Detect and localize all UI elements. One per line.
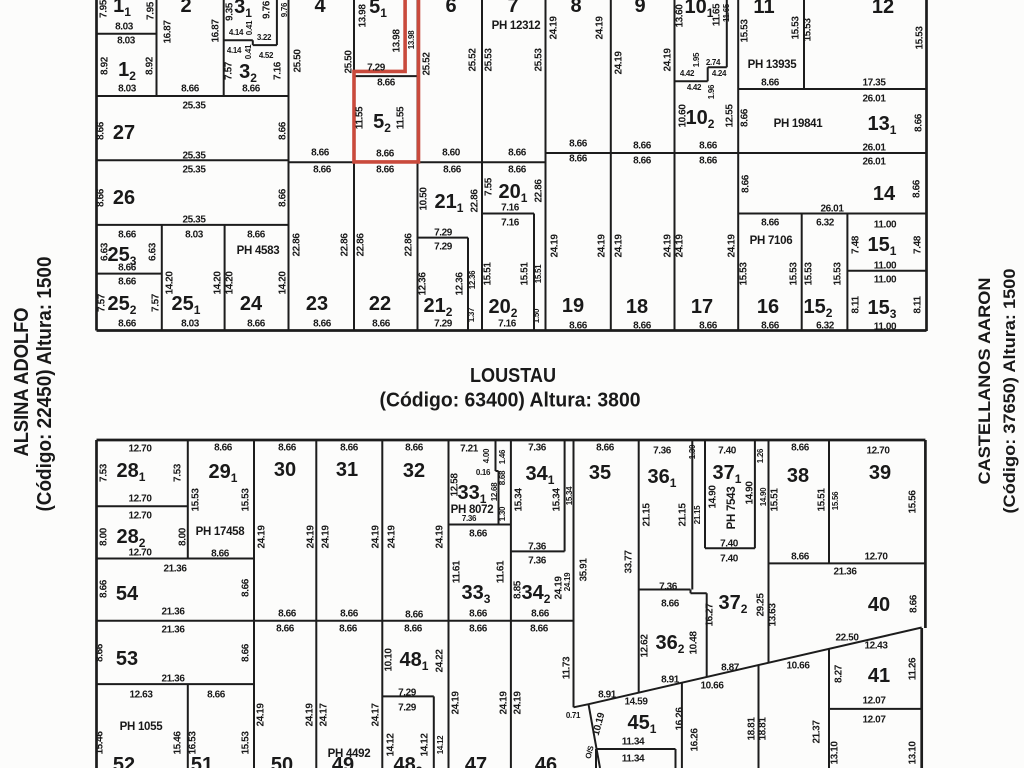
svg-text:7.40: 7.40 [718,446,737,457]
svg-text:15.53: 15.53 [740,19,751,43]
svg-text:25.53: 25.53 [484,48,495,72]
svg-text:7: 7 [507,0,518,17]
svg-text:11.73: 11.73 [562,656,573,679]
svg-text:8.66: 8.66 [596,443,615,454]
svg-text:12.68: 12.68 [490,482,499,501]
svg-text:7.36: 7.36 [528,443,547,454]
svg-text:10.66: 10.66 [786,661,810,672]
svg-text:21.36: 21.36 [833,567,857,578]
svg-text:7.29: 7.29 [398,703,417,714]
svg-text:12.70: 12.70 [128,511,152,522]
svg-text:ALSINA ADOLFO: ALSINA ADOLFO [11,308,33,457]
svg-text:39: 39 [869,462,891,484]
svg-text:12.63: 12.63 [129,690,153,701]
svg-text:1.37: 1.37 [467,307,476,322]
svg-text:7.95: 7.95 [99,0,110,18]
svg-text:11.65: 11.65 [712,3,723,26]
svg-text:0.41: 0.41 [245,20,254,35]
svg-text:8.66: 8.66 [633,156,652,167]
svg-text:11.00: 11.00 [874,275,897,286]
svg-text:17: 17 [691,296,713,318]
svg-text:7.29: 7.29 [367,63,386,74]
svg-text:14.12: 14.12 [386,733,397,757]
svg-text:15.53: 15.53 [241,488,252,512]
svg-text:8.66: 8.66 [469,529,488,540]
svg-text:13.10: 13.10 [830,741,841,765]
svg-text:14.20: 14.20 [278,271,289,295]
svg-text:15.53: 15.53 [241,731,252,755]
svg-text:15.53: 15.53 [915,26,926,50]
svg-text:8.66: 8.66 [761,321,780,332]
svg-text:6.63: 6.63 [148,242,159,261]
svg-text:8.66: 8.66 [118,230,137,241]
svg-text:4.14: 4.14 [229,28,244,37]
svg-text:8.66: 8.66 [443,165,462,176]
svg-text:7.36: 7.36 [528,542,547,553]
svg-text:12: 12 [872,0,894,18]
svg-text:8.66: 8.66 [376,149,395,160]
svg-text:11.00: 11.00 [874,322,897,333]
svg-text:8.66: 8.66 [569,139,588,150]
svg-text:21.37: 21.37 [812,720,823,744]
svg-text:18: 18 [626,296,648,318]
svg-text:8.66: 8.66 [912,179,923,198]
svg-text:29.25: 29.25 [756,593,767,617]
svg-text:47: 47 [465,754,487,768]
svg-text:6: 6 [445,0,456,17]
svg-text:9.35: 9.35 [225,2,236,21]
svg-text:22.86: 22.86 [404,233,415,257]
svg-text:25.35: 25.35 [182,151,206,162]
svg-text:15.51: 15.51 [483,262,494,286]
svg-text:8.87: 8.87 [721,663,740,674]
svg-text:18.81: 18.81 [747,717,758,741]
svg-text:8.66: 8.66 [531,609,550,620]
svg-text:8.11: 8.11 [851,296,862,314]
svg-text:8.91: 8.91 [598,690,617,701]
svg-text:10.50: 10.50 [419,187,430,211]
svg-text:8.66: 8.66 [339,624,358,635]
svg-text:8.66: 8.66 [99,579,110,598]
svg-text:13.63: 13.63 [768,603,779,627]
svg-text:15.51: 15.51 [770,488,781,512]
svg-text:PH 1055: PH 1055 [120,721,164,733]
svg-text:PH 17458: PH 17458 [196,526,246,538]
svg-text:15.51: 15.51 [817,488,828,512]
svg-text:35.91: 35.91 [579,558,590,582]
svg-text:25.35: 25.35 [182,101,206,112]
svg-text:11.34: 11.34 [622,737,645,748]
svg-text:8.66: 8.66 [569,321,588,332]
svg-text:22.86: 22.86 [292,233,303,257]
svg-text:24.17: 24.17 [319,703,330,727]
svg-text:14.20: 14.20 [213,271,224,295]
svg-text:PH 19841: PH 19841 [774,118,824,130]
svg-text:7.55: 7.55 [484,177,495,196]
svg-text:25.52: 25.52 [468,48,479,72]
svg-text:15.56: 15.56 [831,491,840,510]
svg-text:2.74: 2.74 [706,58,721,67]
svg-text:1.30: 1.30 [498,506,507,521]
svg-text:7.53: 7.53 [173,463,184,482]
svg-text:15.46: 15.46 [173,731,184,755]
svg-text:8.66: 8.66 [242,84,261,95]
svg-text:14: 14 [873,183,896,205]
svg-text:22: 22 [369,293,391,315]
svg-text:19: 19 [562,295,584,317]
svg-text:8.66: 8.66 [278,443,297,454]
svg-text:12.70: 12.70 [866,446,890,457]
svg-text:8.66: 8.66 [95,643,106,662]
svg-text:8.03: 8.03 [115,22,134,33]
svg-text:31: 31 [336,459,358,481]
svg-text:11.55: 11.55 [355,106,366,129]
svg-text:7.29: 7.29 [434,242,453,253]
svg-text:22.86: 22.86 [534,179,545,203]
svg-text:12.55: 12.55 [725,104,736,128]
svg-text:11: 11 [753,0,774,18]
svg-text:14.90: 14.90 [708,485,719,509]
svg-text:8.66: 8.66 [340,609,359,620]
svg-text:21.36: 21.36 [161,674,185,685]
svg-text:8.03: 8.03 [185,230,204,241]
svg-text:8.66: 8.66 [278,121,289,140]
svg-text:11.55: 11.55 [396,106,407,129]
svg-text:8.11: 8.11 [913,296,924,314]
svg-text:4: 4 [314,0,326,17]
svg-text:8.66: 8.66 [661,599,680,610]
svg-text:12.70: 12.70 [128,444,152,455]
svg-text:8.66: 8.66 [469,609,488,620]
svg-text:32: 32 [403,460,425,482]
svg-text:24.19: 24.19 [513,691,524,715]
svg-text:8.03: 8.03 [117,36,136,47]
svg-text:8.66: 8.66 [311,148,330,159]
svg-text:11.26: 11.26 [908,657,919,680]
svg-text:12.70: 12.70 [128,548,152,559]
svg-text:(Código: 37650) Altura: 1500: (Código: 37650) Altura: 1500 [1000,269,1019,514]
svg-text:15.51: 15.51 [534,264,543,283]
svg-text:7.48: 7.48 [851,235,862,254]
svg-text:21.15: 21.15 [642,503,653,527]
svg-text:8.66: 8.66 [214,443,233,454]
svg-text:8.66: 8.66 [469,624,488,635]
svg-text:25.53: 25.53 [534,48,545,72]
svg-text:15.53: 15.53 [191,488,202,512]
svg-text:24.19: 24.19 [727,234,738,258]
svg-text:4.00: 4.00 [482,448,491,463]
svg-text:14.20: 14.20 [225,271,236,295]
svg-text:14.59: 14.59 [624,697,648,708]
svg-text:8.03: 8.03 [181,319,200,330]
svg-text:15.53: 15.53 [739,262,750,286]
svg-text:7.36: 7.36 [462,514,477,523]
svg-text:7.16: 7.16 [501,218,520,229]
svg-text:10.66: 10.66 [700,681,724,692]
svg-text:8.00: 8.00 [99,527,110,546]
svg-text:15.34: 15.34 [514,488,525,512]
svg-text:4.52: 4.52 [259,51,274,60]
svg-text:(Código: 22450) Altura: 1500: (Código: 22450) Altura: 1500 [34,257,56,512]
svg-text:16.26: 16.26 [675,707,686,731]
svg-text:12.36: 12.36 [455,272,466,296]
svg-text:8.66: 8.66 [508,165,527,176]
svg-text:14.20: 14.20 [165,271,176,295]
svg-text:24.19: 24.19 [371,525,382,549]
svg-text:15.53: 15.53 [791,16,802,40]
svg-text:24.19: 24.19 [435,525,446,549]
svg-text:1.46: 1.46 [498,449,507,464]
svg-text:PH 13935: PH 13935 [748,59,798,71]
svg-text:7.40: 7.40 [720,554,739,565]
svg-text:8.66: 8.66 [699,141,718,152]
svg-text:8.66: 8.66 [633,141,652,152]
svg-text:1.26: 1.26 [756,448,765,463]
svg-text:9: 9 [634,0,645,17]
svg-text:7.21: 7.21 [460,444,479,455]
svg-text:13.10: 13.10 [908,741,919,765]
svg-text:8.00: 8.00 [178,527,189,546]
svg-text:(Código: 63400) Altura: 3800: (Código: 63400) Altura: 3800 [380,390,641,412]
svg-text:51: 51 [191,754,213,768]
svg-text:8.66: 8.66 [118,277,137,288]
svg-text:7.36: 7.36 [653,446,672,457]
svg-text:8.66: 8.66 [699,156,718,167]
svg-text:12.36: 12.36 [468,270,477,289]
svg-text:25.50: 25.50 [293,49,304,73]
svg-text:26.01: 26.01 [862,143,886,154]
svg-text:PH 7106: PH 7106 [750,235,793,247]
svg-text:8.03: 8.03 [118,84,137,95]
svg-text:0.41: 0.41 [244,44,253,59]
svg-text:24.19: 24.19 [563,572,572,591]
svg-text:11.00: 11.00 [874,261,897,272]
svg-text:11.00: 11.00 [874,220,897,231]
svg-text:8.66: 8.66 [530,624,549,635]
svg-text:8.66: 8.66 [914,113,925,132]
svg-text:38: 38 [787,465,809,487]
svg-text:24.19: 24.19 [306,525,317,549]
svg-text:7.53: 7.53 [99,463,110,482]
svg-text:24.19: 24.19 [614,51,625,75]
svg-text:8.92: 8.92 [145,56,156,75]
svg-text:49: 49 [332,754,354,768]
svg-text:8.66: 8.66 [372,319,391,330]
svg-text:4.24: 4.24 [712,69,727,78]
svg-text:8.68: 8.68 [498,470,507,485]
svg-text:24: 24 [240,293,263,315]
svg-text:10.48: 10.48 [689,631,700,655]
svg-text:PH 12312: PH 12312 [492,20,541,32]
svg-text:50: 50 [271,754,293,768]
svg-text:15.53: 15.53 [803,18,814,42]
svg-text:0.71: 0.71 [566,711,581,720]
svg-text:12.70: 12.70 [128,494,152,505]
svg-text:8.66: 8.66 [569,154,588,165]
svg-text:13.98: 13.98 [392,29,403,53]
svg-text:16.27: 16.27 [705,603,716,627]
svg-text:16.87: 16.87 [211,19,222,43]
svg-text:11.65: 11.65 [722,3,731,22]
svg-text:8.66: 8.66 [207,690,226,701]
svg-text:46: 46 [535,754,557,768]
svg-text:8.66: 8.66 [633,321,652,332]
svg-text:15.53: 15.53 [789,262,800,286]
svg-text:8.66: 8.66 [247,319,266,330]
svg-text:26: 26 [113,187,135,209]
svg-text:8.66: 8.66 [909,594,920,613]
svg-text:23: 23 [306,293,328,315]
svg-text:52: 52 [113,754,135,768]
svg-text:8.91: 8.91 [661,675,680,686]
svg-text:30: 30 [274,459,296,481]
svg-text:6.32: 6.32 [816,321,835,332]
svg-text:14.12: 14.12 [436,735,445,754]
svg-text:25.52: 25.52 [422,52,433,76]
svg-text:22.86: 22.86 [470,189,481,213]
svg-text:8.66: 8.66 [741,174,752,193]
svg-text:8.66: 8.66 [211,549,230,560]
svg-text:8: 8 [570,0,581,17]
svg-text:15.53: 15.53 [804,262,815,286]
svg-text:8.60: 8.60 [442,148,461,159]
svg-text:24.19: 24.19 [451,691,462,715]
svg-text:8.66: 8.66 [118,319,137,330]
svg-text:33.77: 33.77 [624,550,635,574]
svg-text:PH 4583: PH 4583 [237,245,280,257]
svg-text:13.60: 13.60 [675,4,686,28]
svg-text:24.19: 24.19 [321,525,332,549]
svg-text:24.19: 24.19 [550,234,561,258]
svg-text:0.16: 0.16 [476,468,491,477]
svg-text:16.87: 16.87 [163,20,174,44]
svg-text:8.66: 8.66 [276,624,295,635]
svg-text:10.10: 10.10 [384,648,395,672]
svg-text:24.19: 24.19 [663,48,674,72]
svg-text:22.50: 22.50 [835,633,859,644]
svg-text:14.12: 14.12 [420,733,431,757]
svg-text:13.98: 13.98 [358,4,369,28]
svg-text:18.81: 18.81 [758,717,769,741]
svg-text:12.62: 12.62 [640,634,651,658]
svg-text:22.86: 22.86 [356,233,367,257]
svg-text:8.66: 8.66 [313,165,332,176]
svg-text:21.36: 21.36 [161,607,185,618]
svg-text:8.66: 8.66 [508,148,527,159]
svg-text:8.66: 8.66 [96,121,107,140]
svg-text:25.50: 25.50 [344,50,355,74]
svg-text:41: 41 [868,665,890,687]
svg-text:1.95: 1.95 [692,52,701,67]
svg-text:14.90: 14.90 [759,487,768,506]
svg-text:8.66: 8.66 [791,552,810,563]
svg-text:8.66: 8.66 [405,443,424,454]
svg-text:16.26: 16.26 [690,728,701,752]
svg-text:13.98: 13.98 [407,30,416,49]
svg-text:11.34: 11.34 [622,754,645,765]
svg-text:35: 35 [589,462,611,484]
svg-text:27: 27 [113,122,135,144]
svg-text:21.36: 21.36 [161,625,185,636]
svg-text:24.19: 24.19 [675,234,686,258]
svg-text:8.66: 8.66 [118,263,137,274]
svg-text:8.66: 8.66 [791,443,810,454]
svg-text:21.36: 21.36 [163,564,187,575]
svg-text:26.01: 26.01 [862,157,886,168]
svg-text:8.66: 8.66 [247,230,266,241]
svg-text:8.66: 8.66 [404,624,423,635]
svg-text:8.66: 8.66 [241,578,252,597]
svg-text:6.32: 6.32 [816,218,835,229]
svg-text:8.27: 8.27 [834,664,845,683]
svg-text:12.07: 12.07 [862,696,886,707]
svg-text:12.43: 12.43 [864,641,888,652]
svg-text:12.70: 12.70 [864,552,888,563]
svg-text:12.07: 12.07 [862,715,886,726]
svg-text:4.42: 4.42 [687,83,702,92]
svg-text:7.29: 7.29 [434,319,453,330]
svg-text:25.35: 25.35 [182,215,206,226]
svg-text:8.66: 8.66 [699,321,718,332]
svg-text:8.66: 8.66 [405,610,424,621]
svg-text:7.16: 7.16 [498,319,517,330]
svg-text:11.61: 11.61 [496,560,507,583]
svg-text:26.01: 26.01 [862,94,886,105]
svg-text:14.90: 14.90 [745,481,756,505]
svg-text:8.66: 8.66 [761,78,780,89]
svg-text:LOUSTAU: LOUSTAU [470,365,556,387]
svg-text:24.19: 24.19 [614,234,625,258]
svg-text:8.66: 8.66 [278,609,297,620]
svg-text:8.66: 8.66 [96,188,107,207]
svg-text:8.66: 8.66 [761,218,780,229]
svg-text:7.48: 7.48 [913,235,924,254]
svg-text:24.19: 24.19 [499,691,510,715]
svg-text:12.36: 12.36 [418,272,429,296]
svg-text:24.19: 24.19 [595,16,606,40]
svg-text:16: 16 [757,296,779,318]
svg-text:8.66: 8.66 [740,108,751,127]
svg-text:1.30: 1.30 [688,444,697,459]
svg-text:15.56: 15.56 [908,490,919,514]
svg-text:54: 54 [116,583,139,605]
svg-text:7.57: 7.57 [97,293,108,312]
svg-text:16.53: 16.53 [188,731,199,755]
svg-text:8.66: 8.66 [377,78,396,89]
svg-text:7.95: 7.95 [146,1,157,20]
svg-text:25.35: 25.35 [182,165,206,176]
svg-text:15.34: 15.34 [552,488,563,512]
svg-text:1.50: 1.50 [532,308,541,323]
svg-text:CASTELLANOS AARON: CASTELLANOS AARON [975,278,994,485]
svg-text:7.36: 7.36 [528,556,547,567]
svg-text:7.29: 7.29 [434,228,453,239]
svg-text:11.61: 11.61 [452,560,463,583]
svg-text:8.66: 8.66 [278,188,289,207]
svg-text:3.22: 3.22 [257,33,272,42]
svg-text:8.66: 8.66 [313,319,332,330]
svg-text:8.66: 8.66 [241,643,252,662]
svg-text:24.22: 24.22 [435,649,446,673]
svg-text:7.29: 7.29 [398,688,417,699]
svg-text:24.19: 24.19 [257,525,268,549]
svg-text:15.46: 15.46 [95,731,106,755]
svg-text:22.86: 22.86 [340,233,351,257]
svg-text:15.53: 15.53 [833,262,844,286]
svg-text:24.17: 24.17 [371,703,382,727]
svg-text:24.19: 24.19 [256,703,267,727]
svg-text:8.92: 8.92 [100,56,111,75]
